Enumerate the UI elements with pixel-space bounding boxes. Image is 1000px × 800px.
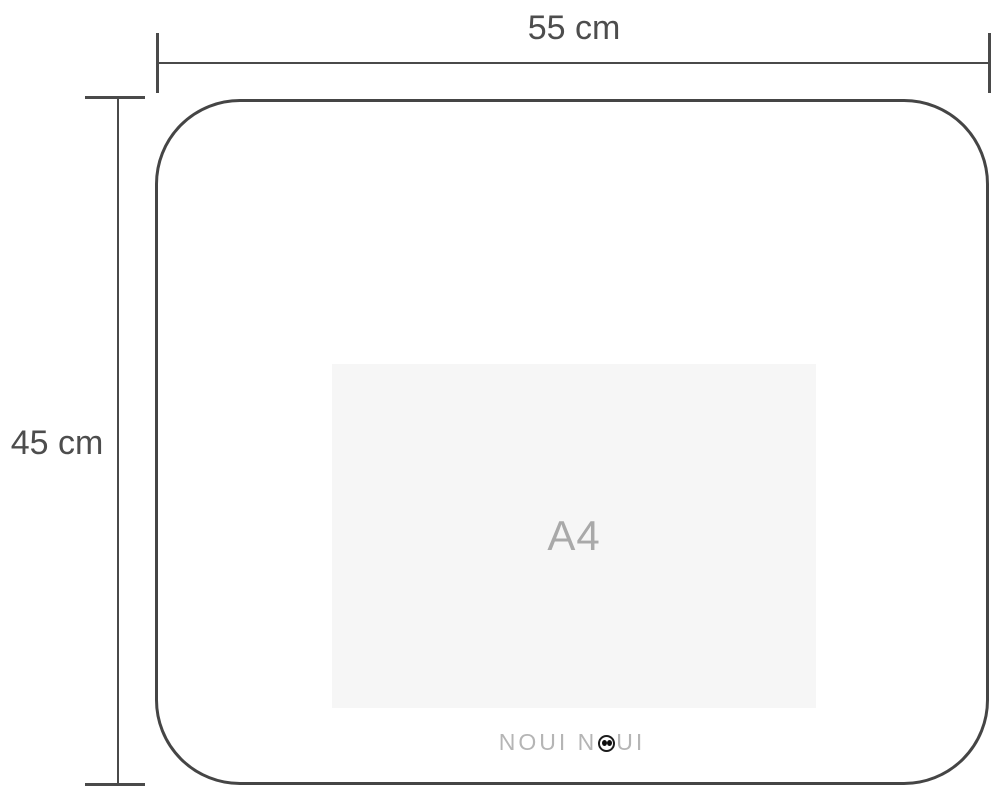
height-dimension-tick-top <box>85 96 145 99</box>
logo-eyes-o-icon <box>598 735 615 752</box>
a4-label: A4 <box>547 512 600 560</box>
brand-logo-text-left: NOUI N <box>499 729 598 755</box>
brand-logo: NOUI NUI <box>155 729 989 756</box>
diagram-canvas: 55 cm 45 cm A4 NOUI NUI <box>0 0 1000 800</box>
width-dimension-line <box>158 62 990 64</box>
brand-logo-text-right: UI <box>616 729 645 755</box>
height-dimension-label: 45 cm <box>2 423 112 463</box>
a4-size-reference: A4 <box>332 364 816 708</box>
height-dimension-tick-bottom <box>85 783 145 786</box>
height-dimension-line <box>117 98 119 786</box>
width-dimension-label: 55 cm <box>158 8 990 48</box>
